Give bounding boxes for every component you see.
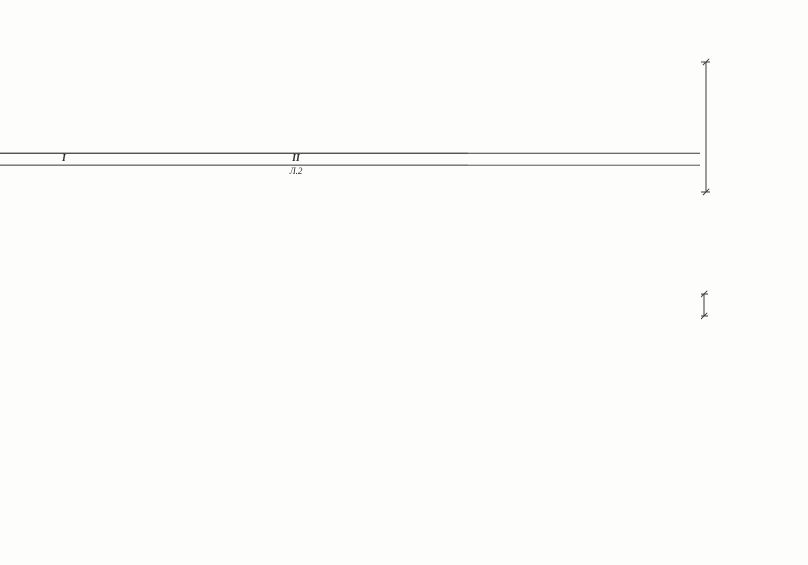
detail-number: II bbox=[0, 153, 700, 166]
detail-callout-ii: II Л.2 bbox=[0, 153, 700, 565]
detail-sheet-ref: Л.2 bbox=[0, 165, 700, 565]
drawing-sheet: 300 500 370 375 170 20 1490 6850 Б В А I… bbox=[0, 0, 808, 565]
